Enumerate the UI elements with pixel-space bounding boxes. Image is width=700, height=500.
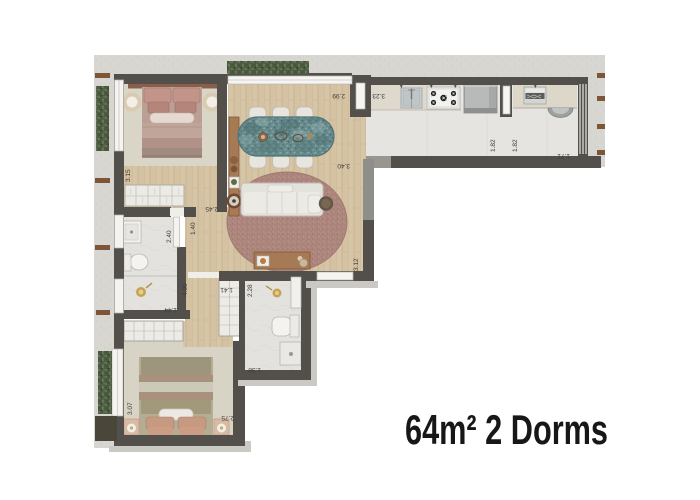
svg-text:2.28: 2.28	[247, 284, 254, 297]
svg-text:4.00: 4.00	[182, 283, 189, 296]
svg-text:1.82: 1.82	[490, 139, 497, 152]
svg-text:64m² 2 Dorms: 64m² 2 Dorms	[405, 406, 608, 453]
svg-text:1.82: 1.82	[512, 139, 519, 152]
svg-text:1.71: 1.71	[557, 152, 570, 159]
svg-text:1.41: 1.41	[220, 286, 233, 293]
svg-text:1.40: 1.40	[190, 222, 197, 235]
svg-text:3.07: 3.07	[127, 402, 134, 415]
svg-text:3.23: 3.23	[372, 92, 385, 99]
svg-text:1.38: 1.38	[248, 366, 261, 373]
svg-text:2.45: 2.45	[205, 205, 218, 212]
svg-text:2.75: 2.75	[221, 414, 234, 421]
svg-text:2.99: 2.99	[332, 92, 345, 99]
svg-text:3.12: 3.12	[353, 258, 360, 271]
svg-text:2.40: 2.40	[166, 230, 173, 243]
svg-text:3.40: 3.40	[337, 162, 350, 169]
svg-text:1.44: 1.44	[164, 306, 177, 313]
svg-text:3.15: 3.15	[125, 169, 132, 182]
